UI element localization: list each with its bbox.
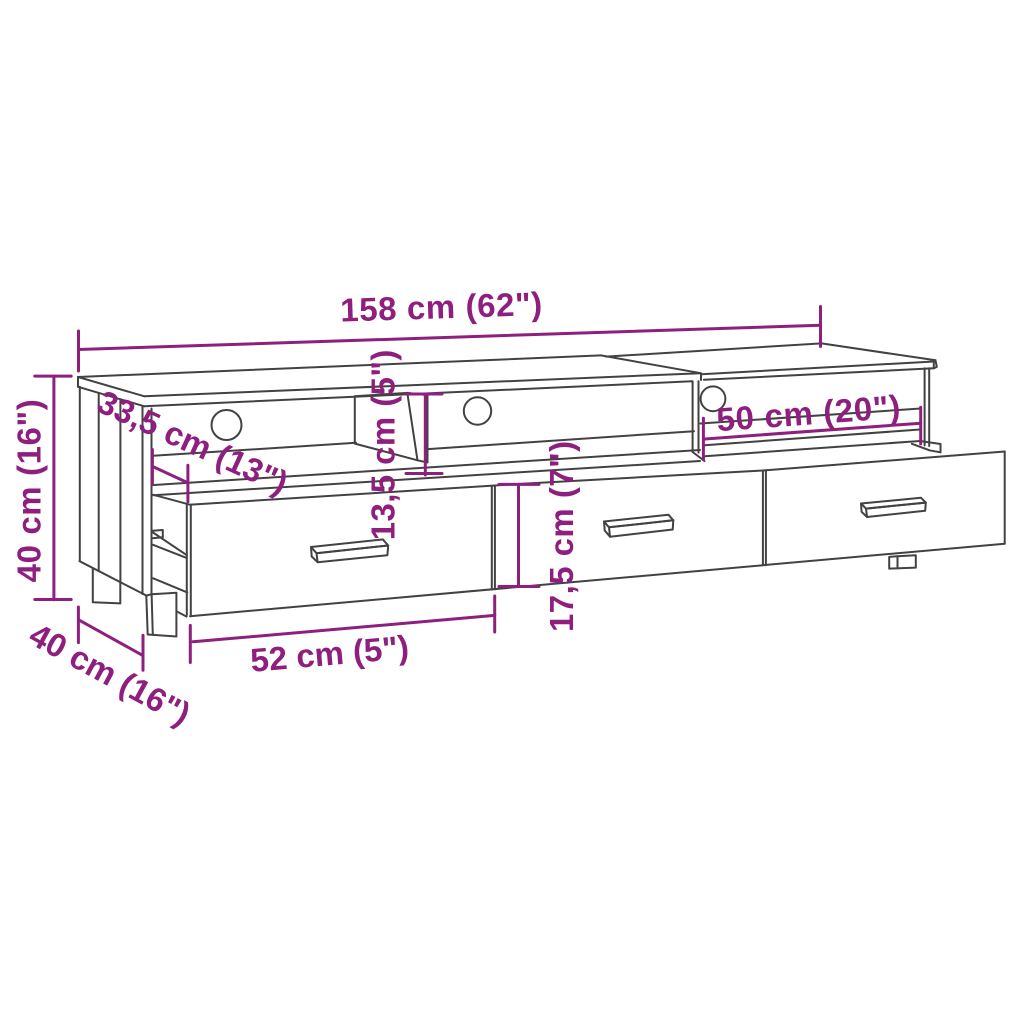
svg-text:17,5 cm (7"): 17,5 cm (7") <box>543 440 580 632</box>
svg-text:40 cm (16"): 40 cm (16") <box>10 399 47 583</box>
svg-text:13,5 cm (5"): 13,5 cm (5") <box>365 349 402 540</box>
svg-text:158 cm (62"): 158 cm (62") <box>340 285 544 329</box>
